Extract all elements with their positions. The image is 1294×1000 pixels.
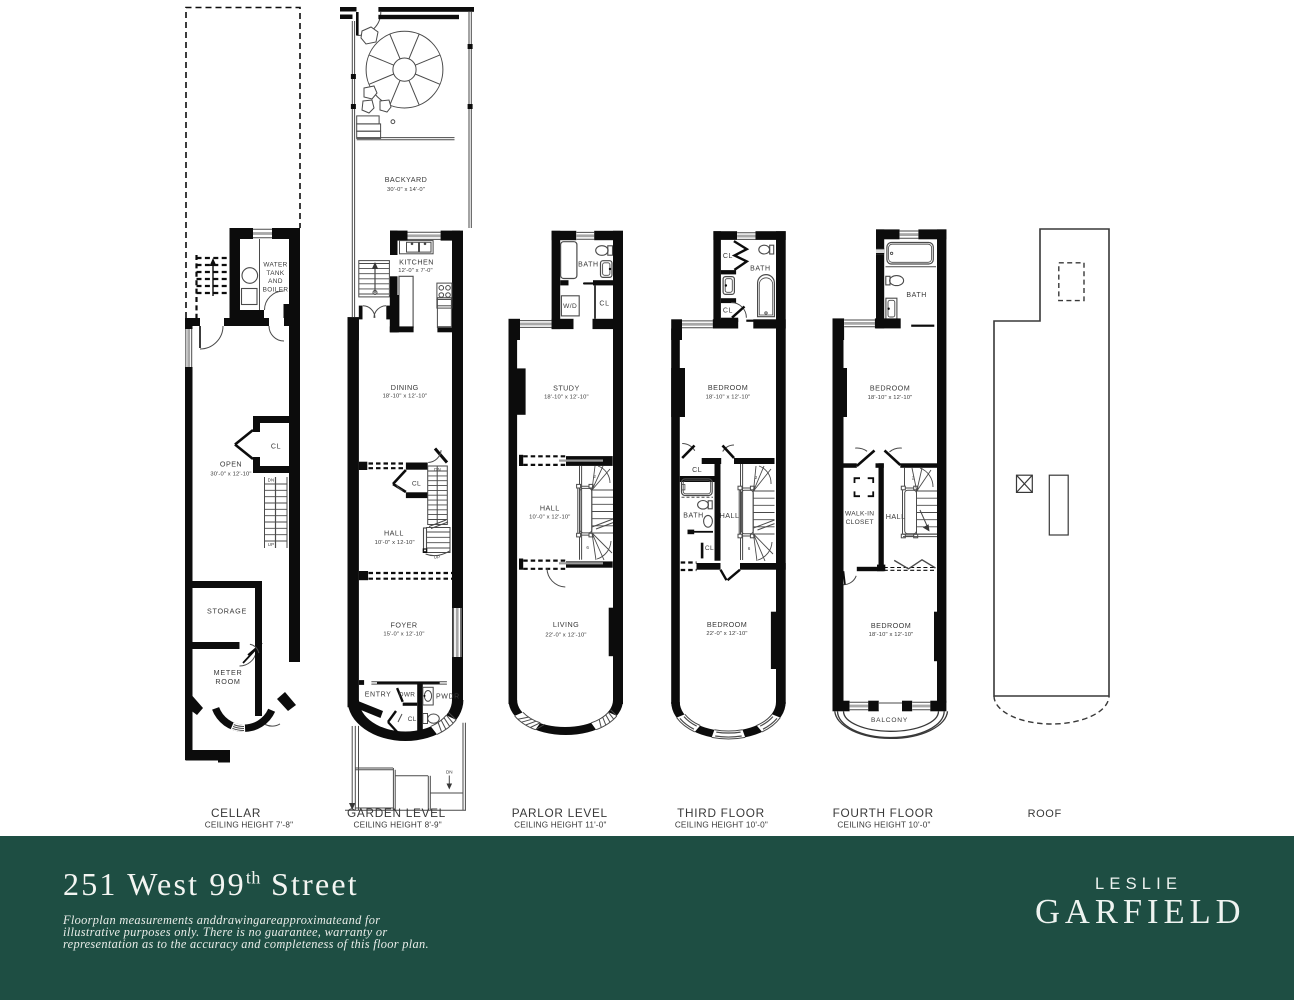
svg-text:BEDROOM: BEDROOM: [707, 620, 747, 629]
svg-text:BEDROOM: BEDROOM: [871, 621, 911, 630]
svg-text:CL: CL: [692, 467, 702, 474]
svg-text:30'-0" x 12'-10": 30'-0" x 12'-10": [210, 472, 251, 478]
svg-text:FOURTH FLOOR: FOURTH FLOOR: [833, 806, 934, 820]
svg-text:CL: CL: [723, 308, 733, 315]
svg-text:18'-10" x 12'-10": 18'-10" x 12'-10": [706, 394, 751, 400]
svg-text:ENTRY: ENTRY: [365, 691, 392, 698]
svg-text:18'-10" x 12'-10": 18'-10" x 12'-10": [869, 632, 914, 638]
svg-text:WATER: WATER: [263, 262, 287, 269]
svg-text:UP: UP: [268, 542, 275, 547]
svg-text:18'-10" x 12'-10": 18'-10" x 12'-10": [868, 395, 913, 401]
svg-text:LIVING: LIVING: [553, 620, 579, 629]
svg-text:22'-0" x 12'-10": 22'-0" x 12'-10": [706, 631, 747, 637]
svg-text:CL: CL: [723, 253, 733, 260]
svg-text:2: 2: [593, 474, 596, 479]
svg-text:10'-0" x 12-10": 10'-0" x 12-10": [375, 540, 415, 546]
svg-text:18'-10" x 12'-10": 18'-10" x 12'-10": [544, 394, 589, 400]
svg-text:HALL: HALL: [384, 529, 404, 538]
svg-text:18'-10" x 12'-10": 18'-10" x 12'-10": [383, 394, 428, 400]
svg-text:CELLAR: CELLAR: [211, 806, 261, 820]
svg-text:BATH: BATH: [750, 266, 771, 273]
svg-text:CLOSET: CLOSET: [846, 519, 874, 526]
svg-text:2: 2: [912, 475, 915, 480]
svg-text:CEILING HEIGHT 8'-9": CEILING HEIGHT 8'-9": [353, 821, 441, 830]
svg-text:DINING: DINING: [391, 383, 419, 392]
svg-text:STORAGE: STORAGE: [207, 607, 247, 616]
svg-text:CL: CL: [412, 481, 421, 488]
svg-text:GARDEN LEVEL: GARDEN LEVEL: [347, 806, 446, 820]
svg-text:PARLOR LEVEL: PARLOR LEVEL: [512, 806, 608, 820]
svg-text:KITCHEN: KITCHEN: [399, 257, 434, 266]
svg-text:CL: CL: [705, 545, 714, 552]
svg-text:DWR: DWR: [399, 691, 415, 698]
svg-text:FOYER: FOYER: [390, 621, 417, 630]
svg-text:BACKYARD: BACKYARD: [385, 175, 428, 184]
svg-text:12'-0" x 7'-0": 12'-0" x 7'-0": [398, 268, 433, 274]
svg-text:HALL: HALL: [540, 503, 560, 512]
svg-text:AND: AND: [268, 278, 283, 285]
svg-text:BATH: BATH: [906, 292, 927, 299]
svg-text:ROOM: ROOM: [215, 677, 240, 686]
svg-text:BATH: BATH: [683, 513, 704, 520]
svg-text:6: 6: [748, 546, 751, 551]
svg-text:CL: CL: [408, 716, 417, 723]
svg-text:BEDROOM: BEDROOM: [870, 384, 910, 393]
svg-text:DN: DN: [268, 478, 275, 483]
svg-text:CEILING HEIGHT 10'-0": CEILING HEIGHT 10'-0": [837, 821, 930, 830]
svg-text:BALCONY: BALCONY: [871, 717, 908, 724]
svg-text:THIRD FLOOR: THIRD FLOOR: [677, 806, 765, 820]
svg-text:2: 2: [755, 475, 758, 480]
svg-text:TANK: TANK: [266, 270, 285, 277]
svg-text:STUDY: STUDY: [553, 383, 580, 392]
svg-text:CL: CL: [271, 444, 281, 451]
svg-text:DN: DN: [434, 467, 441, 472]
svg-text:ROOF: ROOF: [1028, 808, 1062, 820]
svg-text:6: 6: [586, 545, 589, 550]
svg-text:W/D: W/D: [563, 303, 577, 310]
svg-text:CEILING HEIGHT 7'-8": CEILING HEIGHT 7'-8": [205, 821, 293, 830]
svg-text:CEILING HEIGHT 11'-0": CEILING HEIGHT 11'-0": [514, 821, 607, 830]
svg-text:BOILER: BOILER: [263, 286, 289, 293]
svg-text:BEDROOM: BEDROOM: [708, 383, 748, 392]
svg-text:22'-0" x 12'-10": 22'-0" x 12'-10": [545, 632, 586, 638]
svg-text:METER: METER: [214, 668, 243, 677]
svg-text:CL: CL: [599, 300, 609, 307]
svg-text:BATH: BATH: [578, 261, 599, 268]
svg-text:10'-0" x 12'-10": 10'-0" x 12'-10": [529, 514, 570, 520]
svg-text:OPEN: OPEN: [220, 460, 242, 469]
svg-text:CEILING HEIGHT 10'-0": CEILING HEIGHT 10'-0": [675, 821, 768, 830]
svg-text:WALK-IN: WALK-IN: [845, 511, 874, 518]
svg-text:15'-0" x 12'-10": 15'-0" x 12'-10": [383, 632, 424, 638]
svg-text:PWDR: PWDR: [436, 694, 460, 701]
svg-text:30'-0" x 14'-0": 30'-0" x 14'-0": [387, 187, 425, 193]
svg-text:HALL: HALL: [720, 511, 740, 520]
svg-text:DN: DN: [446, 769, 453, 774]
